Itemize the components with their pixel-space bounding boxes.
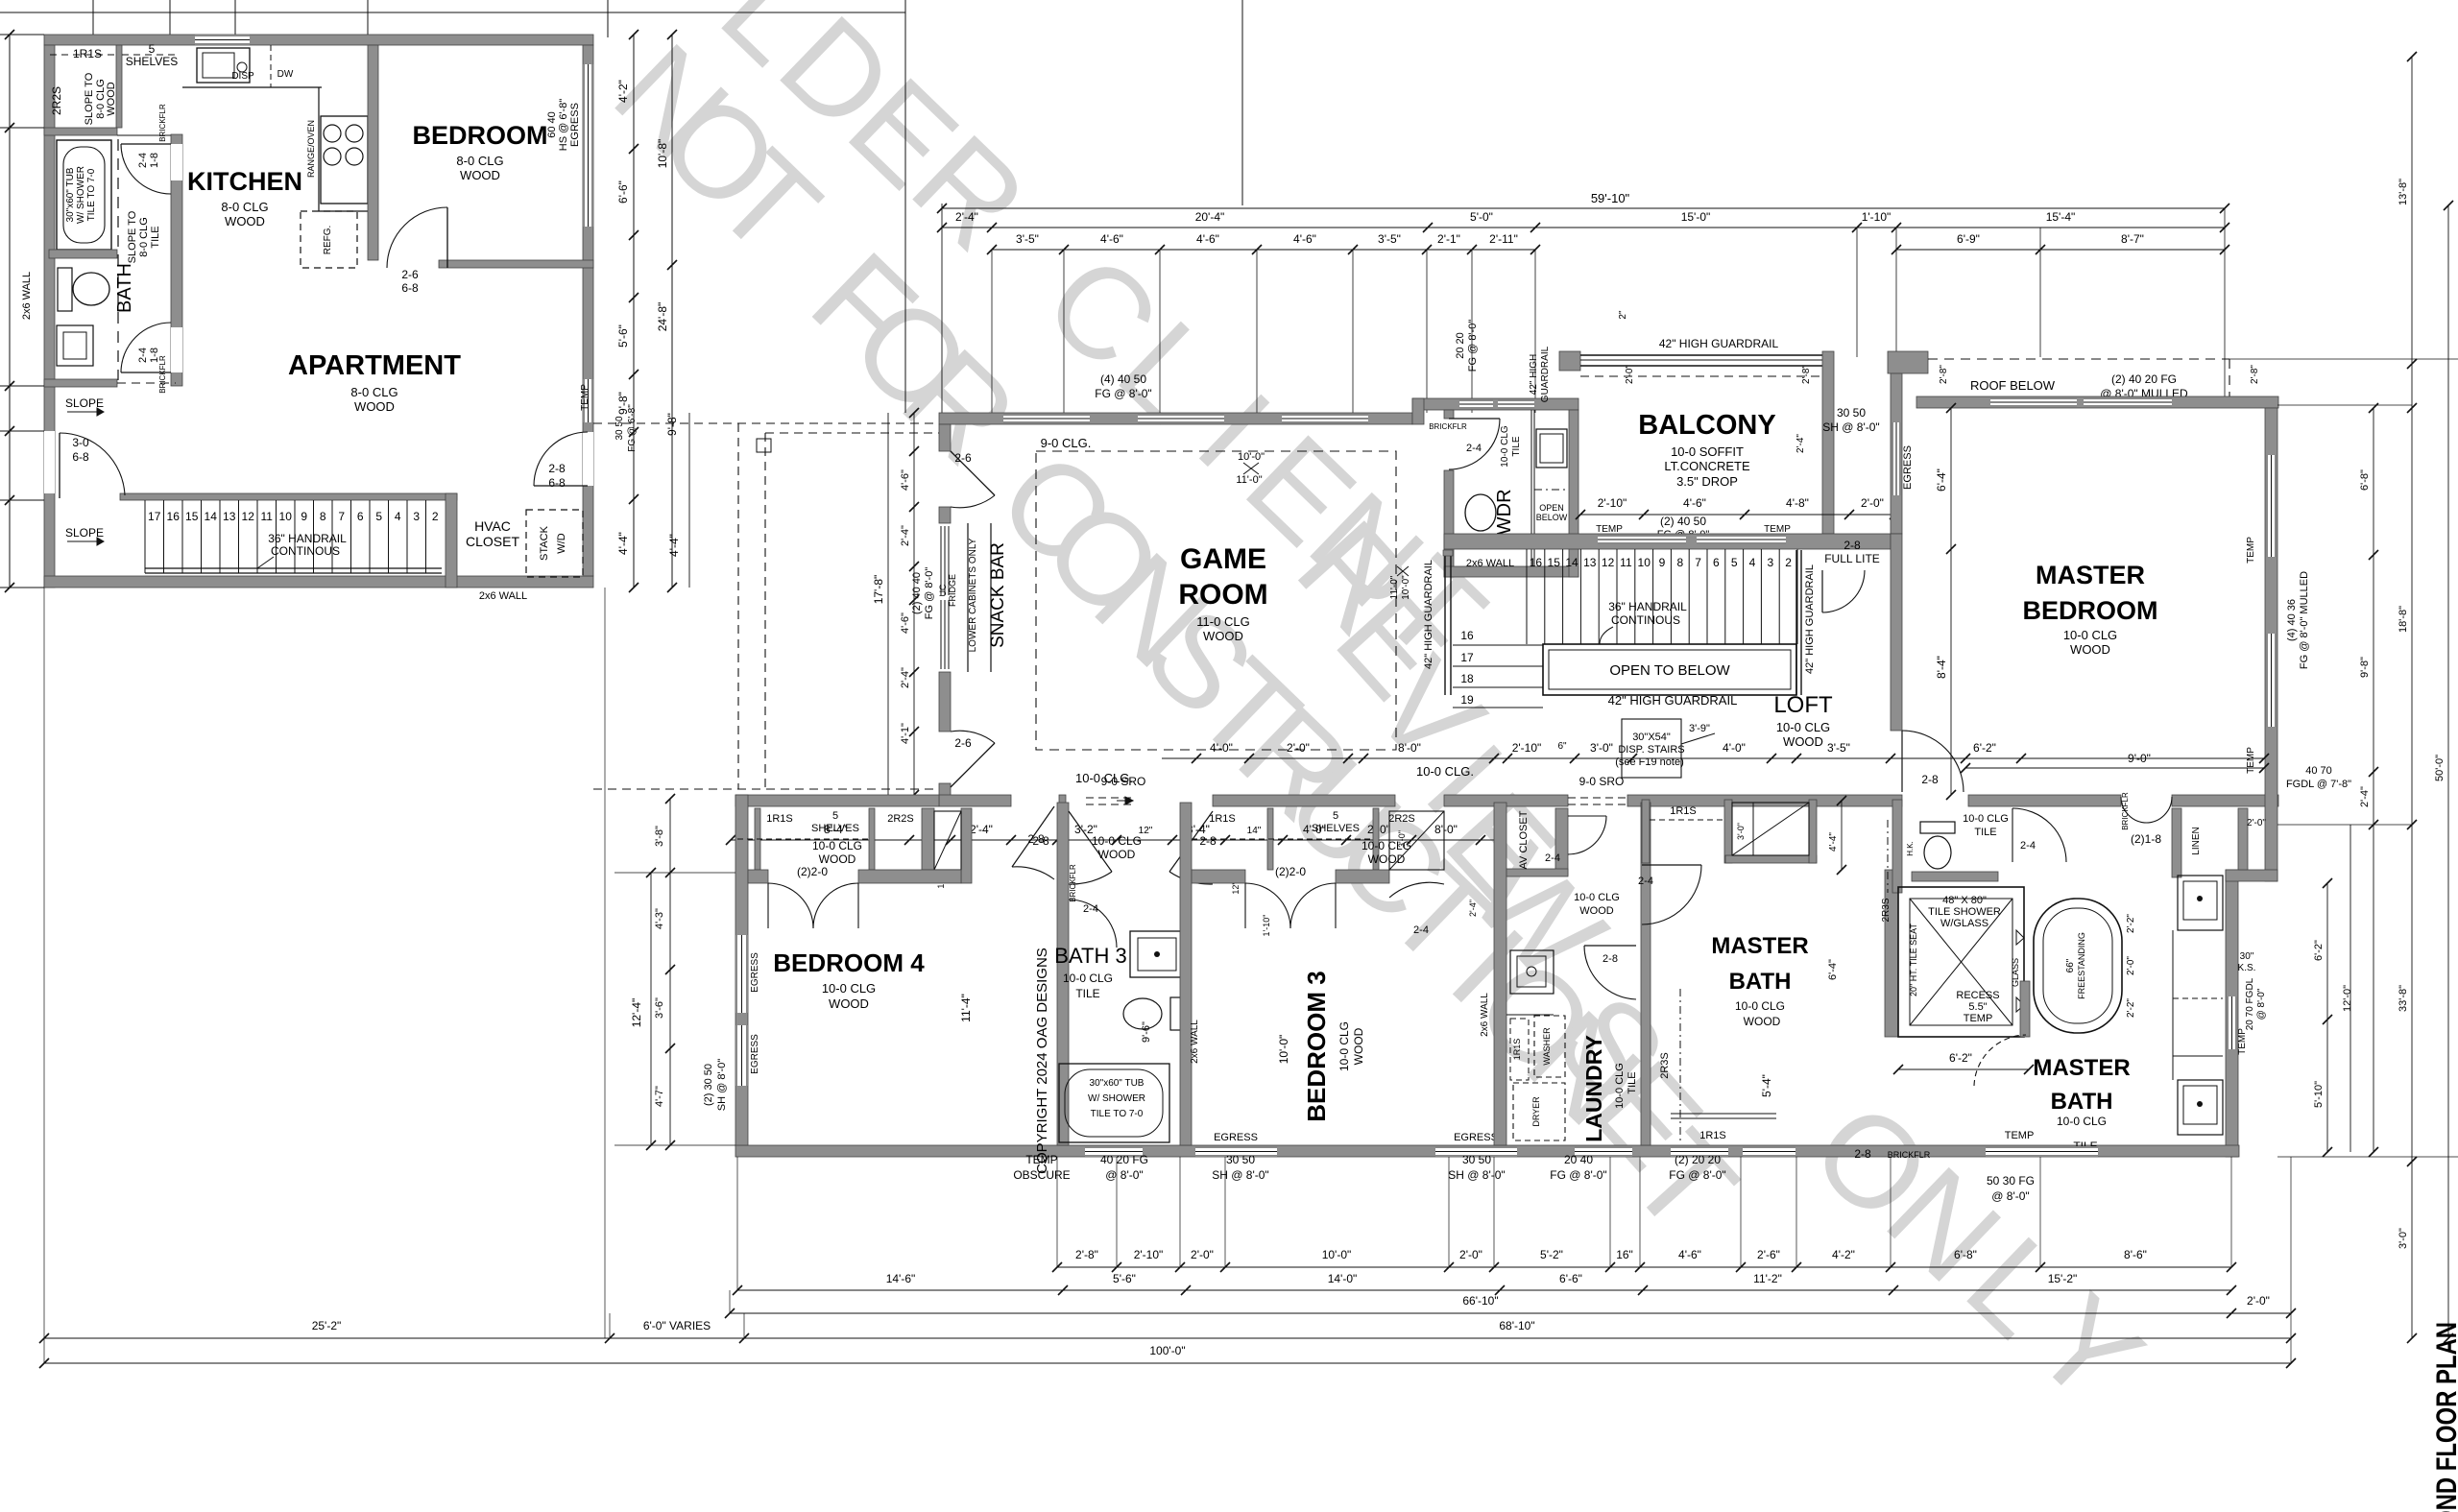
svg-text:1R1S: 1R1S [73,47,102,60]
svg-text:W/ SHOWER: W/ SHOWER [1088,1093,1145,1104]
svg-text:WOOD: WOOD [819,852,856,866]
svg-text:2R2S: 2R2S [887,813,914,825]
svg-text:2x6 WALL: 2x6 WALL [479,590,527,602]
svg-text:14: 14 [1565,556,1578,569]
svg-text:6'-2": 6'-2" [1949,1051,1972,1065]
svg-text:EGRESS: EGRESS [1454,1132,1498,1143]
svg-text:8-0 CLG: 8-0 CLG [456,154,503,168]
svg-text:MASTER: MASTER [2033,1055,2130,1081]
svg-text:(2)2-0: (2)2-0 [1275,865,1306,878]
svg-text:BATH 3: BATH 3 [1054,944,1126,968]
svg-text:9'-8": 9'-8" [2359,657,2371,678]
svg-text:10-0 CLG: 10-0 CLG [1092,834,1142,848]
svg-text:DISP. STAIRS: DISP. STAIRS [1618,744,1684,756]
svg-text:10-0 CLG: 10-0 CLG [1963,813,2009,825]
svg-text:2'-8": 2'-8" [1801,365,1812,384]
svg-text:6-8: 6-8 [401,281,419,295]
svg-text:2x6 WALL: 2x6 WALL [1466,558,1514,569]
svg-text:LOFT: LOFT [1773,692,1833,718]
svg-text:4'-6": 4'-6" [900,469,911,491]
svg-text:TEMP: TEMP [580,384,590,411]
svg-text:16": 16" [1616,1248,1633,1261]
svg-text:8'-6": 8'-6" [2124,1248,2147,1261]
svg-text:WASHER: WASHER [1542,1027,1552,1066]
svg-text:42" HIGH: 42" HIGH [1529,354,1539,395]
svg-text:WOOD: WOOD [2070,642,2110,657]
svg-text:SHELVES: SHELVES [811,823,859,834]
svg-text:SHELVES: SHELVES [1312,823,1360,834]
svg-text:2-8: 2-8 [1199,834,1217,848]
svg-text:20" HT. TILE SEAT: 20" HT. TILE SEAT [1909,924,1918,996]
svg-text:48" X 80": 48" X 80" [1942,895,1987,906]
svg-text:TILE: TILE [1974,827,1996,838]
svg-text:1'-10": 1'-10" [1262,915,1271,937]
svg-text:16: 16 [1530,556,1543,569]
svg-text:4'-2": 4'-2" [1832,1248,1855,1261]
svg-text:6'-4": 6'-4" [1827,959,1839,980]
svg-text:FG @ 8'-0": FG @ 8'-0" [1095,387,1151,400]
svg-text:14": 14" [1247,826,1262,836]
svg-text:LAUNDRY: LAUNDRY [1581,1035,1606,1142]
svg-text:H.K.: H.K. [1906,841,1915,856]
svg-text:WOOD: WOOD [1783,734,1823,749]
svg-text:11: 11 [260,510,273,523]
svg-text:2'-4": 2'-4" [970,823,993,836]
svg-text:BRICKFLR: BRICKFLR [2121,792,2130,830]
svg-text:1R1S: 1R1S [1670,805,1697,817]
svg-text:30 50: 30 50 [1462,1153,1491,1166]
svg-text:BRICKFLR: BRICKFLR [1429,422,1467,431]
svg-text:13'-8": 13'-8" [2398,179,2409,205]
svg-text:15'-0": 15'-0" [1681,210,1711,224]
svg-text:WOOD: WOOD [106,82,117,115]
svg-text:4'-0": 4'-0" [1210,741,1233,755]
svg-text:4'-2": 4'-2" [616,80,630,103]
svg-text:WOOD: WOOD [1203,629,1243,643]
svg-text:4'-3": 4'-3" [654,908,665,929]
svg-text:5'-6": 5'-6" [616,324,630,348]
svg-text:7: 7 [1695,556,1701,569]
svg-text:5: 5 [375,510,382,523]
svg-text:4'-0": 4'-0" [1723,741,1746,755]
svg-text:6'-6": 6'-6" [1559,1272,1582,1285]
svg-text:TEMP: TEMP [1764,524,1791,535]
svg-text:SLOPE TO: SLOPE TO [84,72,95,125]
svg-text:2'-2": 2'-2" [2126,998,2136,1018]
svg-text:1-8: 1-8 [149,153,160,168]
svg-text:ROOF BELOW: ROOF BELOW [1970,378,2056,393]
svg-text:GAME: GAME [1180,543,1266,575]
svg-text:RANGE/OVEN: RANGE/OVEN [306,120,316,178]
svg-text:1R1S: 1R1S [1209,813,1236,825]
svg-text:2-8: 2-8 [1854,1147,1871,1161]
svg-text:SLOPE TO: SLOPE TO [127,210,138,263]
svg-text:66'-10": 66'-10" [1462,1294,1498,1308]
svg-text:EGRESS: EGRESS [1214,1132,1258,1143]
svg-text:RECESS: RECESS [1956,990,1999,1001]
svg-text:8'-0": 8'-0" [1434,823,1458,836]
svg-text:14'-6": 14'-6" [886,1272,916,1285]
svg-text:25'-2": 25'-2" [312,1319,342,1332]
svg-text:5.5": 5.5" [1968,1001,1987,1013]
svg-text:2'-0": 2'-0" [2247,818,2266,828]
svg-text:30 50: 30 50 [614,416,625,440]
svg-text:GUARDRAIL: GUARDRAIL [1540,346,1551,402]
svg-text:2: 2 [1785,556,1792,569]
svg-text:EGRESS: EGRESS [750,952,760,993]
svg-text:TILE: TILE [1511,436,1522,456]
svg-text:100'-0": 100'-0" [1149,1344,1185,1357]
svg-text:60 40: 60 40 [546,111,558,138]
svg-text:12: 12 [1602,556,1615,569]
svg-text:42" HIGH GUARDRAIL: 42" HIGH GUARDRAIL [1659,337,1779,350]
svg-text:BEDROOM: BEDROOM [413,121,548,150]
svg-text:4'-7": 4'-7" [654,1086,665,1107]
svg-text:8-0 CLG: 8-0 CLG [138,217,150,257]
svg-text:BRICKFLR: BRICKFLR [1069,864,1077,902]
svg-text:10'-0": 10'-0" [1277,1035,1290,1065]
svg-text:1R1S: 1R1S [1699,1130,1726,1141]
svg-text:3'-0": 3'-0" [1397,830,1407,848]
svg-text:WOOD: WOOD [1744,1015,1781,1028]
svg-text:59'-10": 59'-10" [1591,191,1630,205]
svg-text:(4) 40 36: (4) 40 36 [2286,599,2298,641]
svg-text:2'-4": 2'-4" [2359,786,2371,807]
svg-text:CLOSET: CLOSET [466,534,519,549]
svg-text:2-6: 2-6 [954,736,972,750]
svg-text:REFG.: REFG. [323,226,333,255]
svg-text:@ 8'-0": @ 8'-0" [2256,988,2267,1020]
svg-text:2'-4": 2'-4" [900,525,911,546]
svg-text:14: 14 [205,510,218,523]
svg-text:3.5" DROP: 3.5" DROP [1676,474,1738,489]
svg-text:2'-0": 2'-0" [1861,496,1884,510]
svg-text:30": 30" [2240,951,2254,962]
svg-text:DRYER: DRYER [1531,1096,1541,1127]
svg-text:W/ SHOWER: W/ SHOWER [76,166,86,224]
svg-text:OPEN TO BELOW: OPEN TO BELOW [1609,662,1730,679]
svg-text:DW: DW [277,69,294,80]
svg-text:FG @ 8'-0": FG @ 8'-0" [1669,1168,1725,1182]
svg-text:FRIDGE: FRIDGE [948,574,957,607]
svg-text:8'-4": 8'-4" [1935,656,1948,679]
svg-text:8'-7": 8'-7" [2121,232,2144,246]
svg-text:2R3S: 2R3S [1881,898,1892,922]
svg-text:(2) 40 20 FG: (2) 40 20 FG [2111,372,2177,386]
svg-text:HVAC: HVAC [474,518,511,534]
svg-text:FG @ 8'-0" MULLED: FG @ 8'-0" MULLED [2299,571,2310,669]
svg-text:2-4: 2-4 [1413,924,1429,936]
svg-text:9: 9 [301,510,307,523]
svg-text:3: 3 [1767,556,1773,569]
svg-text:2'-10": 2'-10" [1134,1248,1164,1261]
svg-text:2-4: 2-4 [1638,876,1653,887]
svg-text:SH @ 8'-0": SH @ 8'-0" [1822,420,1879,434]
svg-text:(4) 40 50: (4) 40 50 [1100,372,1146,386]
svg-text:2-6: 2-6 [954,451,972,465]
svg-text:2'-4": 2'-4" [900,667,911,688]
svg-text:10-0 CLG: 10-0 CLG [812,839,862,852]
svg-text:6'-2": 6'-2" [1973,741,1996,755]
svg-text:14'-0": 14'-0" [1328,1272,1358,1285]
svg-text:6": 6" [1557,741,1567,752]
svg-text:ROOM: ROOM [1178,579,1267,611]
svg-text:2": 2" [1618,310,1628,320]
svg-text:WOOD: WOOD [1352,1027,1365,1065]
svg-text:K.S.: K.S. [2238,963,2256,973]
svg-text:9'-8": 9'-8" [616,392,630,415]
svg-text:TEMP: TEMP [1025,1153,1057,1166]
svg-text:2-8: 2-8 [548,462,566,475]
svg-text:BATH: BATH [2051,1089,2113,1115]
svg-text:TILE TO 7-0: TILE TO 7-0 [86,168,97,221]
svg-text:6'-6": 6'-6" [616,180,630,204]
svg-text:9: 9 [1659,556,1666,569]
svg-text:30"X54": 30"X54" [1632,732,1671,743]
svg-text:2-8: 2-8 [1843,539,1861,552]
svg-text:10-0 CLG: 10-0 CLG [1574,892,1620,903]
svg-text:18: 18 [1460,672,1474,685]
svg-text:3'-0": 3'-0" [1736,823,1746,840]
svg-text:FULL LITE: FULL LITE [1824,552,1880,565]
svg-text:AV CLOSET: AV CLOSET [1518,810,1530,869]
svg-text:2'-0": 2'-0" [1191,1248,1214,1261]
svg-text:5'-0": 5'-0" [1470,210,1493,224]
svg-text:2'-11": 2'-11" [1489,232,1518,246]
svg-text:6-8: 6-8 [548,476,566,490]
svg-text:(2) 40 40: (2) 40 40 [911,572,923,614]
svg-text:42" HIGH GUARDRAIL: 42" HIGH GUARDRAIL [1608,693,1738,708]
svg-text:OBSCURE: OBSCURE [1013,1168,1070,1182]
svg-text:11-0 CLG: 11-0 CLG [1196,614,1249,629]
svg-text:5: 5 [1333,810,1338,822]
svg-text:LINEN: LINEN [2191,827,2202,854]
svg-text:LOWER CABINETS ONLY: LOWER CABINETS ONLY [968,538,978,652]
svg-text:2'-2": 2'-2" [2126,914,2136,933]
svg-text:20 20: 20 20 [1455,332,1466,359]
svg-text:FG @ 8'-0": FG @ 8'-0" [1467,320,1479,372]
svg-text:MASTER: MASTER [1711,933,1808,959]
svg-text:TEMP: TEMP [2246,537,2256,564]
svg-text:MASTER: MASTER [2036,561,2145,589]
svg-text:COPYRIGHT 2024 OAG DESIGNS: COPYRIGHT 2024 OAG DESIGNS [1034,948,1050,1174]
svg-text:2x6 WALL: 2x6 WALL [1190,1020,1200,1064]
svg-text:2'-0": 2'-0" [2247,1294,2270,1308]
svg-text:BEDROOM 4: BEDROOM 4 [773,948,925,977]
svg-text:(2)2-0: (2)2-0 [797,865,828,878]
svg-text:9'-6": 9'-6" [1141,1021,1152,1043]
svg-text:TEMP: TEMP [2237,1028,2248,1055]
svg-text:2-8: 2-8 [1603,953,1618,965]
svg-text:3'-8": 3'-8" [654,826,665,847]
svg-text:KITCHEN: KITCHEN [187,167,302,196]
svg-text:19: 19 [1460,693,1474,707]
svg-text:2'-10": 2'-10" [1598,496,1627,510]
svg-text:4'-6": 4'-6" [1683,496,1706,510]
svg-text:2'-8": 2'-8" [1939,365,1949,384]
svg-text:3-0: 3-0 [72,436,89,449]
svg-text:6'-2": 6'-2" [2313,940,2325,961]
svg-text:6'-4": 6'-4" [1935,468,1948,492]
svg-text:W/GLASS: W/GLASS [1940,918,1988,929]
svg-text:24'-8": 24'-8" [656,302,669,332]
svg-text:6'-0" VARIES: 6'-0" VARIES [643,1319,711,1332]
svg-text:(2)1-8: (2)1-8 [2131,832,2161,846]
svg-text:SH @ 8'-0": SH @ 8'-0" [1448,1168,1505,1182]
svg-text:4'-6": 4'-6" [900,612,911,634]
svg-text:10-0 CLG: 10-0 CLG [2063,628,2117,642]
svg-text:13: 13 [223,510,236,523]
svg-text:2'-4": 2'-4" [1795,434,1806,453]
svg-text:3'-0": 3'-0" [2398,1228,2409,1249]
svg-text:@ 8'-0": @ 8'-0" [1105,1168,1143,1182]
svg-text:5: 5 [1731,556,1738,569]
svg-text:30 50: 30 50 [1837,406,1866,420]
svg-text:UC: UC [938,584,948,596]
svg-text:@ 8'-0": @ 8'-0" [1991,1189,2029,1203]
svg-text:10'-8": 10'-8" [656,139,669,169]
svg-text:5: 5 [832,810,838,822]
svg-text:5'-4": 5'-4" [1760,1074,1773,1097]
svg-text:17'-8": 17'-8" [872,575,885,605]
svg-text:20 40: 20 40 [1564,1153,1593,1166]
svg-text:5'-6": 5'-6" [1113,1272,1136,1285]
svg-text:SH @ 8'-0": SH @ 8'-0" [1212,1168,1268,1182]
svg-text:1'-10": 1'-10" [1862,210,1892,224]
svg-text:4'-8": 4'-8" [1786,496,1809,510]
svg-text:BEDROOM 3: BEDROOM 3 [1302,971,1331,1121]
svg-text:OPEN: OPEN [1539,503,1564,513]
svg-text:TEMP: TEMP [2005,1130,2035,1141]
svg-text:5'-10": 5'-10" [2313,1081,2325,1108]
svg-text:4'-4": 4'-4" [667,534,681,557]
svg-text:TEMP: TEMP [2246,747,2256,774]
svg-text:8: 8 [1676,556,1683,569]
svg-text:2'-0": 2'-0" [1625,365,1635,384]
svg-text:11'-0": 11'-0" [1236,474,1262,486]
svg-text:11'-2": 11'-2" [1753,1272,1782,1285]
svg-text:WOOD: WOOD [1579,905,1613,917]
svg-text:DISP: DISP [231,71,254,82]
svg-text:TILE: TILE [1627,1071,1638,1093]
svg-text:APARTMENT: APARTMENT [288,350,461,381]
svg-text:10-0 CLG: 10-0 CLG [822,981,876,996]
svg-text:6'-9": 6'-9" [1957,232,1980,246]
svg-text:16: 16 [1460,629,1474,642]
svg-text:15'-4": 15'-4" [2046,210,2076,224]
svg-text:4'-6": 4'-6" [1293,232,1316,246]
svg-text:FREESTANDING: FREESTANDING [2077,932,2086,999]
svg-text:BRICKFLR: BRICKFLR [158,104,167,142]
svg-text:10'-0": 10'-0" [1401,575,1411,600]
svg-text:3: 3 [413,510,420,523]
svg-text:SLOPE: SLOPE [65,526,104,540]
svg-text:2-8: 2-8 [1921,773,1939,786]
svg-text:LT.CONCRETE: LT.CONCRETE [1664,459,1750,473]
svg-text:TILE: TILE [1075,987,1099,1000]
svg-text:BATH: BATH [1729,969,1792,995]
svg-text:10-0 CLG: 10-0 CLG [2057,1115,2107,1128]
svg-text:CONTINOUS: CONTINOUS [271,544,340,558]
svg-text:10-0 CLG.: 10-0 CLG. [1416,764,1474,779]
svg-text:TEMP: TEMP [1596,524,1623,535]
svg-text:BALCONY: BALCONY [1638,410,1775,441]
svg-text:10'-0": 10'-0" [1322,1248,1352,1261]
svg-text:BRICKFLR: BRICKFLR [1888,1150,1931,1160]
svg-text:20 70 FGDL: 20 70 FGDL [2245,977,2255,1030]
svg-text:20'-4": 20'-4" [1195,210,1225,224]
svg-text:2-8: 2-8 [1032,834,1049,848]
svg-text:40 70: 40 70 [2305,765,2332,777]
svg-text:3'-5": 3'-5" [1016,232,1039,246]
svg-text:BEDROOM: BEDROOM [2023,596,2158,625]
svg-text:SLOPE: SLOPE [65,396,104,410]
svg-text:11'-4": 11'-4" [959,994,973,1022]
svg-text:18'-8": 18'-8" [2398,606,2409,633]
svg-text:4'-4": 4'-4" [1828,832,1839,852]
svg-text:GLASS: GLASS [2011,958,2020,987]
svg-text:4'-6": 4'-6" [1100,232,1123,246]
svg-text:13: 13 [1583,556,1597,569]
svg-text:2R2S: 2R2S [1388,813,1415,825]
svg-text:(2) 40 50: (2) 40 50 [1660,515,1706,528]
svg-text:2'-6": 2'-6" [1757,1248,1780,1261]
svg-text:10-0 CLG: 10-0 CLG [1614,1063,1626,1109]
svg-text:2-4: 2-4 [137,153,149,168]
svg-text:15'-2": 15'-2" [2048,1272,2078,1285]
svg-text:9-0 SRO: 9-0 SRO [1579,775,1625,788]
svg-text:2-4: 2-4 [137,348,149,363]
svg-text:2'-8": 2'-8" [2250,365,2260,384]
svg-text:TILE SHOWER: TILE SHOWER [1928,906,2001,918]
svg-text:2-6: 2-6 [401,268,419,281]
svg-text:6-8: 6-8 [72,450,89,464]
svg-text:10-0 CLG: 10-0 CLG [1500,425,1510,468]
svg-text:11: 11 [1620,556,1632,569]
svg-text:2'-4": 2'-4" [1468,900,1478,917]
svg-text:FGDL @ 7'-8": FGDL @ 7'-8" [2286,779,2351,790]
svg-text:10-0 SOFFIT: 10-0 SOFFIT [1671,444,1744,459]
svg-text:50 30 FG: 50 30 FG [1987,1174,2035,1188]
svg-text:3'-9": 3'-9" [1689,723,1710,734]
svg-text:42" HIGH GUARDRAIL: 42" HIGH GUARDRAIL [1423,560,1434,669]
svg-text:TILE: TILE [150,226,161,248]
svg-text:TILE TO 7-0: TILE TO 7-0 [1091,1109,1144,1119]
svg-text:36" HANDRAIL: 36" HANDRAIL [1608,600,1687,613]
svg-text:WOOD: WOOD [460,168,500,182]
svg-text:FG @ 8'-0": FG @ 8'-0" [1550,1168,1606,1182]
svg-text:10'-0": 10'-0" [1238,451,1265,463]
svg-text:7: 7 [338,510,345,523]
svg-text:2-4: 2-4 [1083,903,1098,915]
svg-text:SH @ 8'-0": SH @ 8'-0" [716,1059,728,1112]
svg-text:3'-6": 3'-6" [654,997,665,1019]
svg-text:4: 4 [395,510,401,523]
svg-text:68'-10": 68'-10" [1499,1319,1534,1332]
svg-text:2x6 WALL: 2x6 WALL [1480,993,1490,1037]
svg-text:WOOD: WOOD [225,214,265,228]
svg-text:(2) 30 50: (2) 30 50 [703,1064,714,1106]
svg-text:3'-0": 3'-0" [1590,741,1613,755]
svg-text:2'-0": 2'-0" [2126,956,2136,975]
svg-text:2x6 WALL: 2x6 WALL [21,272,33,320]
svg-text:4'-6": 4'-6" [1678,1248,1701,1261]
svg-text:4: 4 [1749,556,1756,569]
svg-text:2'-0": 2'-0" [1287,741,1310,755]
svg-text:10-0 CLG: 10-0 CLG [1063,972,1113,985]
svg-text:W/D: W/D [556,533,567,553]
svg-text:36" HANDRAIL: 36" HANDRAIL [268,532,347,545]
